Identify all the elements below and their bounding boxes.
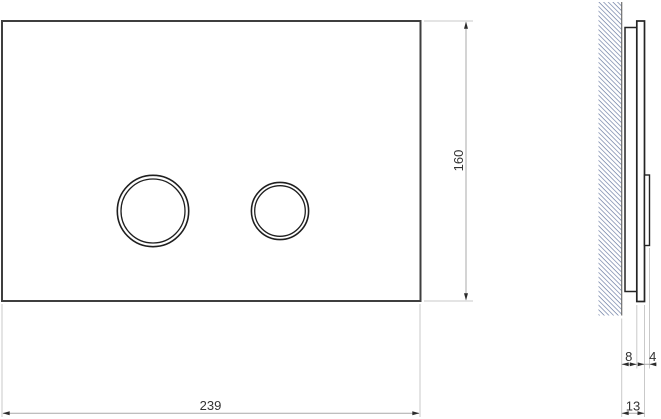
dimension-label-total-depth: 13 xyxy=(626,398,640,413)
button-protrusion-profile xyxy=(645,175,650,246)
dimension-total-depth: 13 xyxy=(622,398,645,415)
side-view xyxy=(599,2,650,316)
plate-profile xyxy=(637,21,645,302)
arrowhead-right-icon xyxy=(412,411,419,415)
arrowhead-inward-right-icon xyxy=(638,362,645,366)
dimension-plate-height: 160 xyxy=(424,21,473,301)
dimension-label-button-protrusion: 4 xyxy=(649,349,656,364)
wall-hatch xyxy=(599,2,622,316)
mounting-frame-profile xyxy=(625,28,637,292)
arrowhead-left-icon xyxy=(3,411,10,415)
front-view xyxy=(2,21,421,301)
flush-plate-front-outline xyxy=(2,21,421,301)
technical-drawing-canvas: 160 239 8 xyxy=(0,0,661,419)
dimension-label-height: 160 xyxy=(451,150,466,172)
dimension-label-width: 239 xyxy=(200,398,222,413)
flush-plate-technical-drawing: 160 239 8 xyxy=(0,0,661,419)
dimension-label-frame-depth: 8 xyxy=(625,349,632,364)
arrowhead-down-icon xyxy=(464,293,468,300)
dimension-plate-width: 239 xyxy=(2,304,420,417)
arrowhead-up-icon xyxy=(464,22,468,29)
